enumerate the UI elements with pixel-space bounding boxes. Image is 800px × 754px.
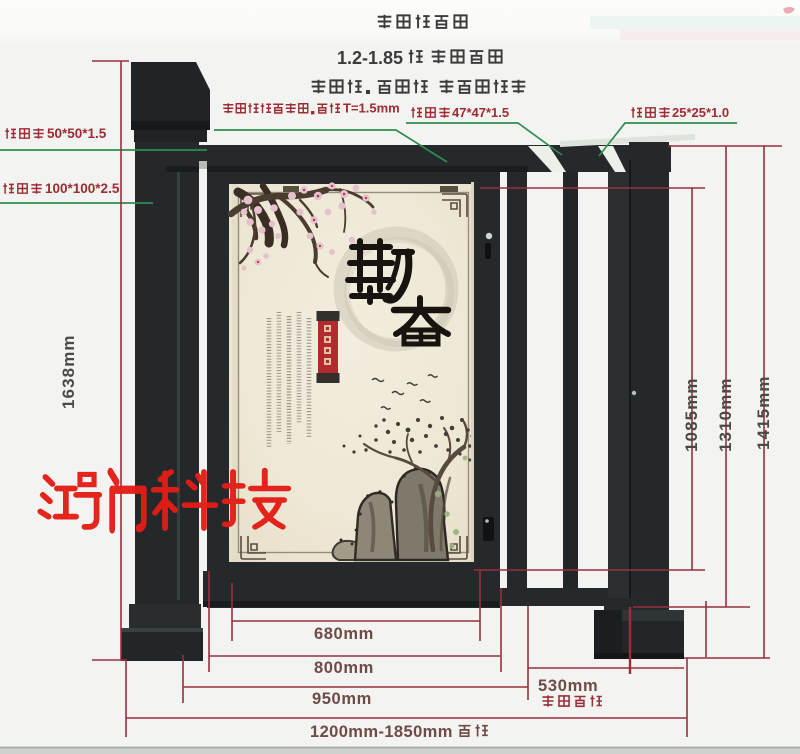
svg-text:100*100*2.5: 100*100*2.5 bbox=[45, 181, 120, 196]
svg-text:1638mm: 1638mm bbox=[59, 334, 78, 409]
svg-text:47*47*1.5: 47*47*1.5 bbox=[452, 105, 509, 120]
svg-text:1415mm: 1415mm bbox=[754, 375, 773, 450]
svg-text:1085mm: 1085mm bbox=[682, 377, 701, 452]
svg-text:T=1.5mm: T=1.5mm bbox=[343, 101, 400, 116]
svg-text:25*25*1.0: 25*25*1.0 bbox=[672, 105, 729, 120]
svg-text:1.2-1.85: 1.2-1.85 bbox=[337, 48, 403, 68]
svg-text:680mm: 680mm bbox=[314, 625, 374, 643]
svg-text:530mm: 530mm bbox=[538, 677, 598, 695]
svg-text:800mm: 800mm bbox=[314, 659, 374, 677]
svg-text:1310mm: 1310mm bbox=[716, 377, 735, 452]
svg-text:50*50*1.5: 50*50*1.5 bbox=[47, 126, 107, 141]
svg-text:950mm: 950mm bbox=[312, 690, 372, 708]
svg-text:1200mm-1850mm: 1200mm-1850mm bbox=[310, 723, 453, 741]
